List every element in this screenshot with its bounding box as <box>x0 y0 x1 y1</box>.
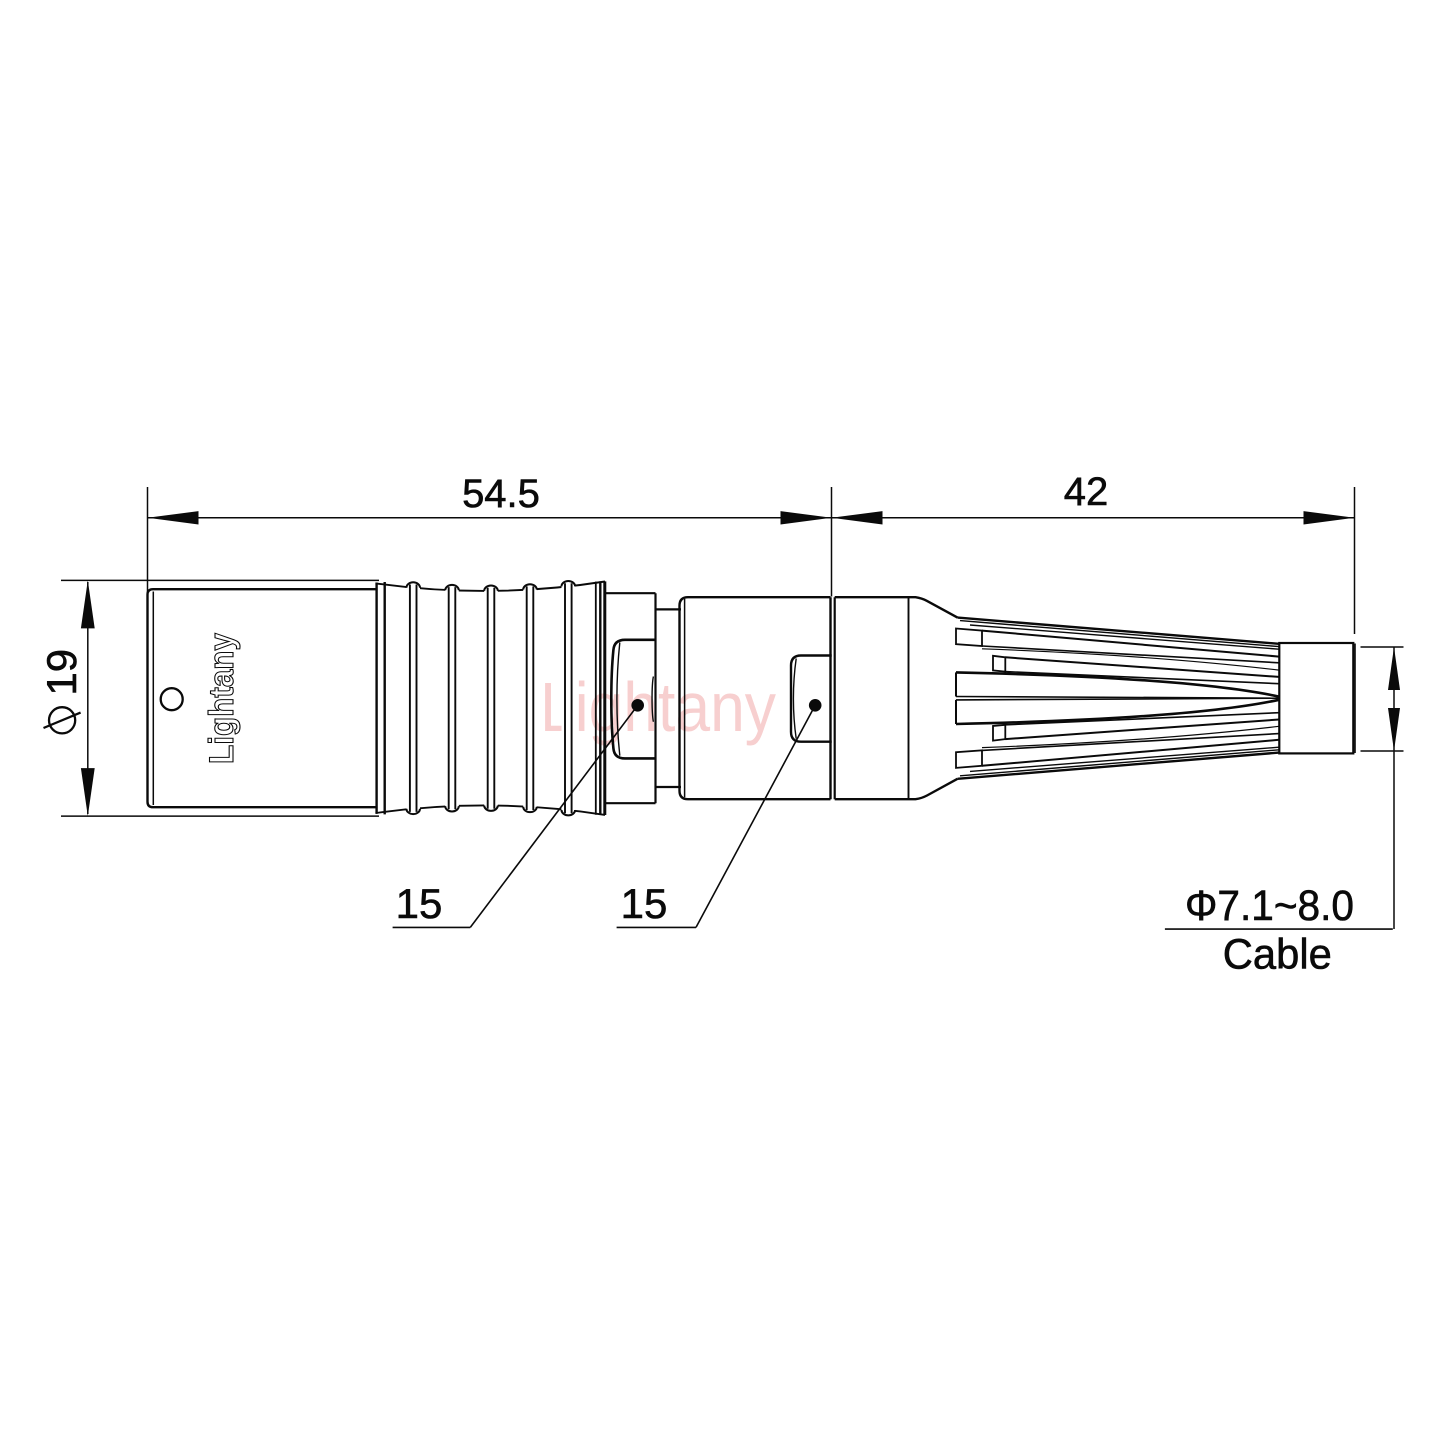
svg-text:15: 15 <box>396 880 443 927</box>
svg-text:Lightany: Lightany <box>203 633 241 764</box>
svg-text:19: 19 <box>38 649 85 696</box>
svg-text:Φ7.1~8.0: Φ7.1~8.0 <box>1185 882 1354 930</box>
svg-text:54.5: 54.5 <box>462 472 540 516</box>
svg-text:42: 42 <box>1064 470 1109 514</box>
svg-text:Cable: Cable <box>1223 931 1332 979</box>
svg-text:Lightany: Lightany <box>540 668 776 746</box>
svg-text:15: 15 <box>621 880 668 927</box>
